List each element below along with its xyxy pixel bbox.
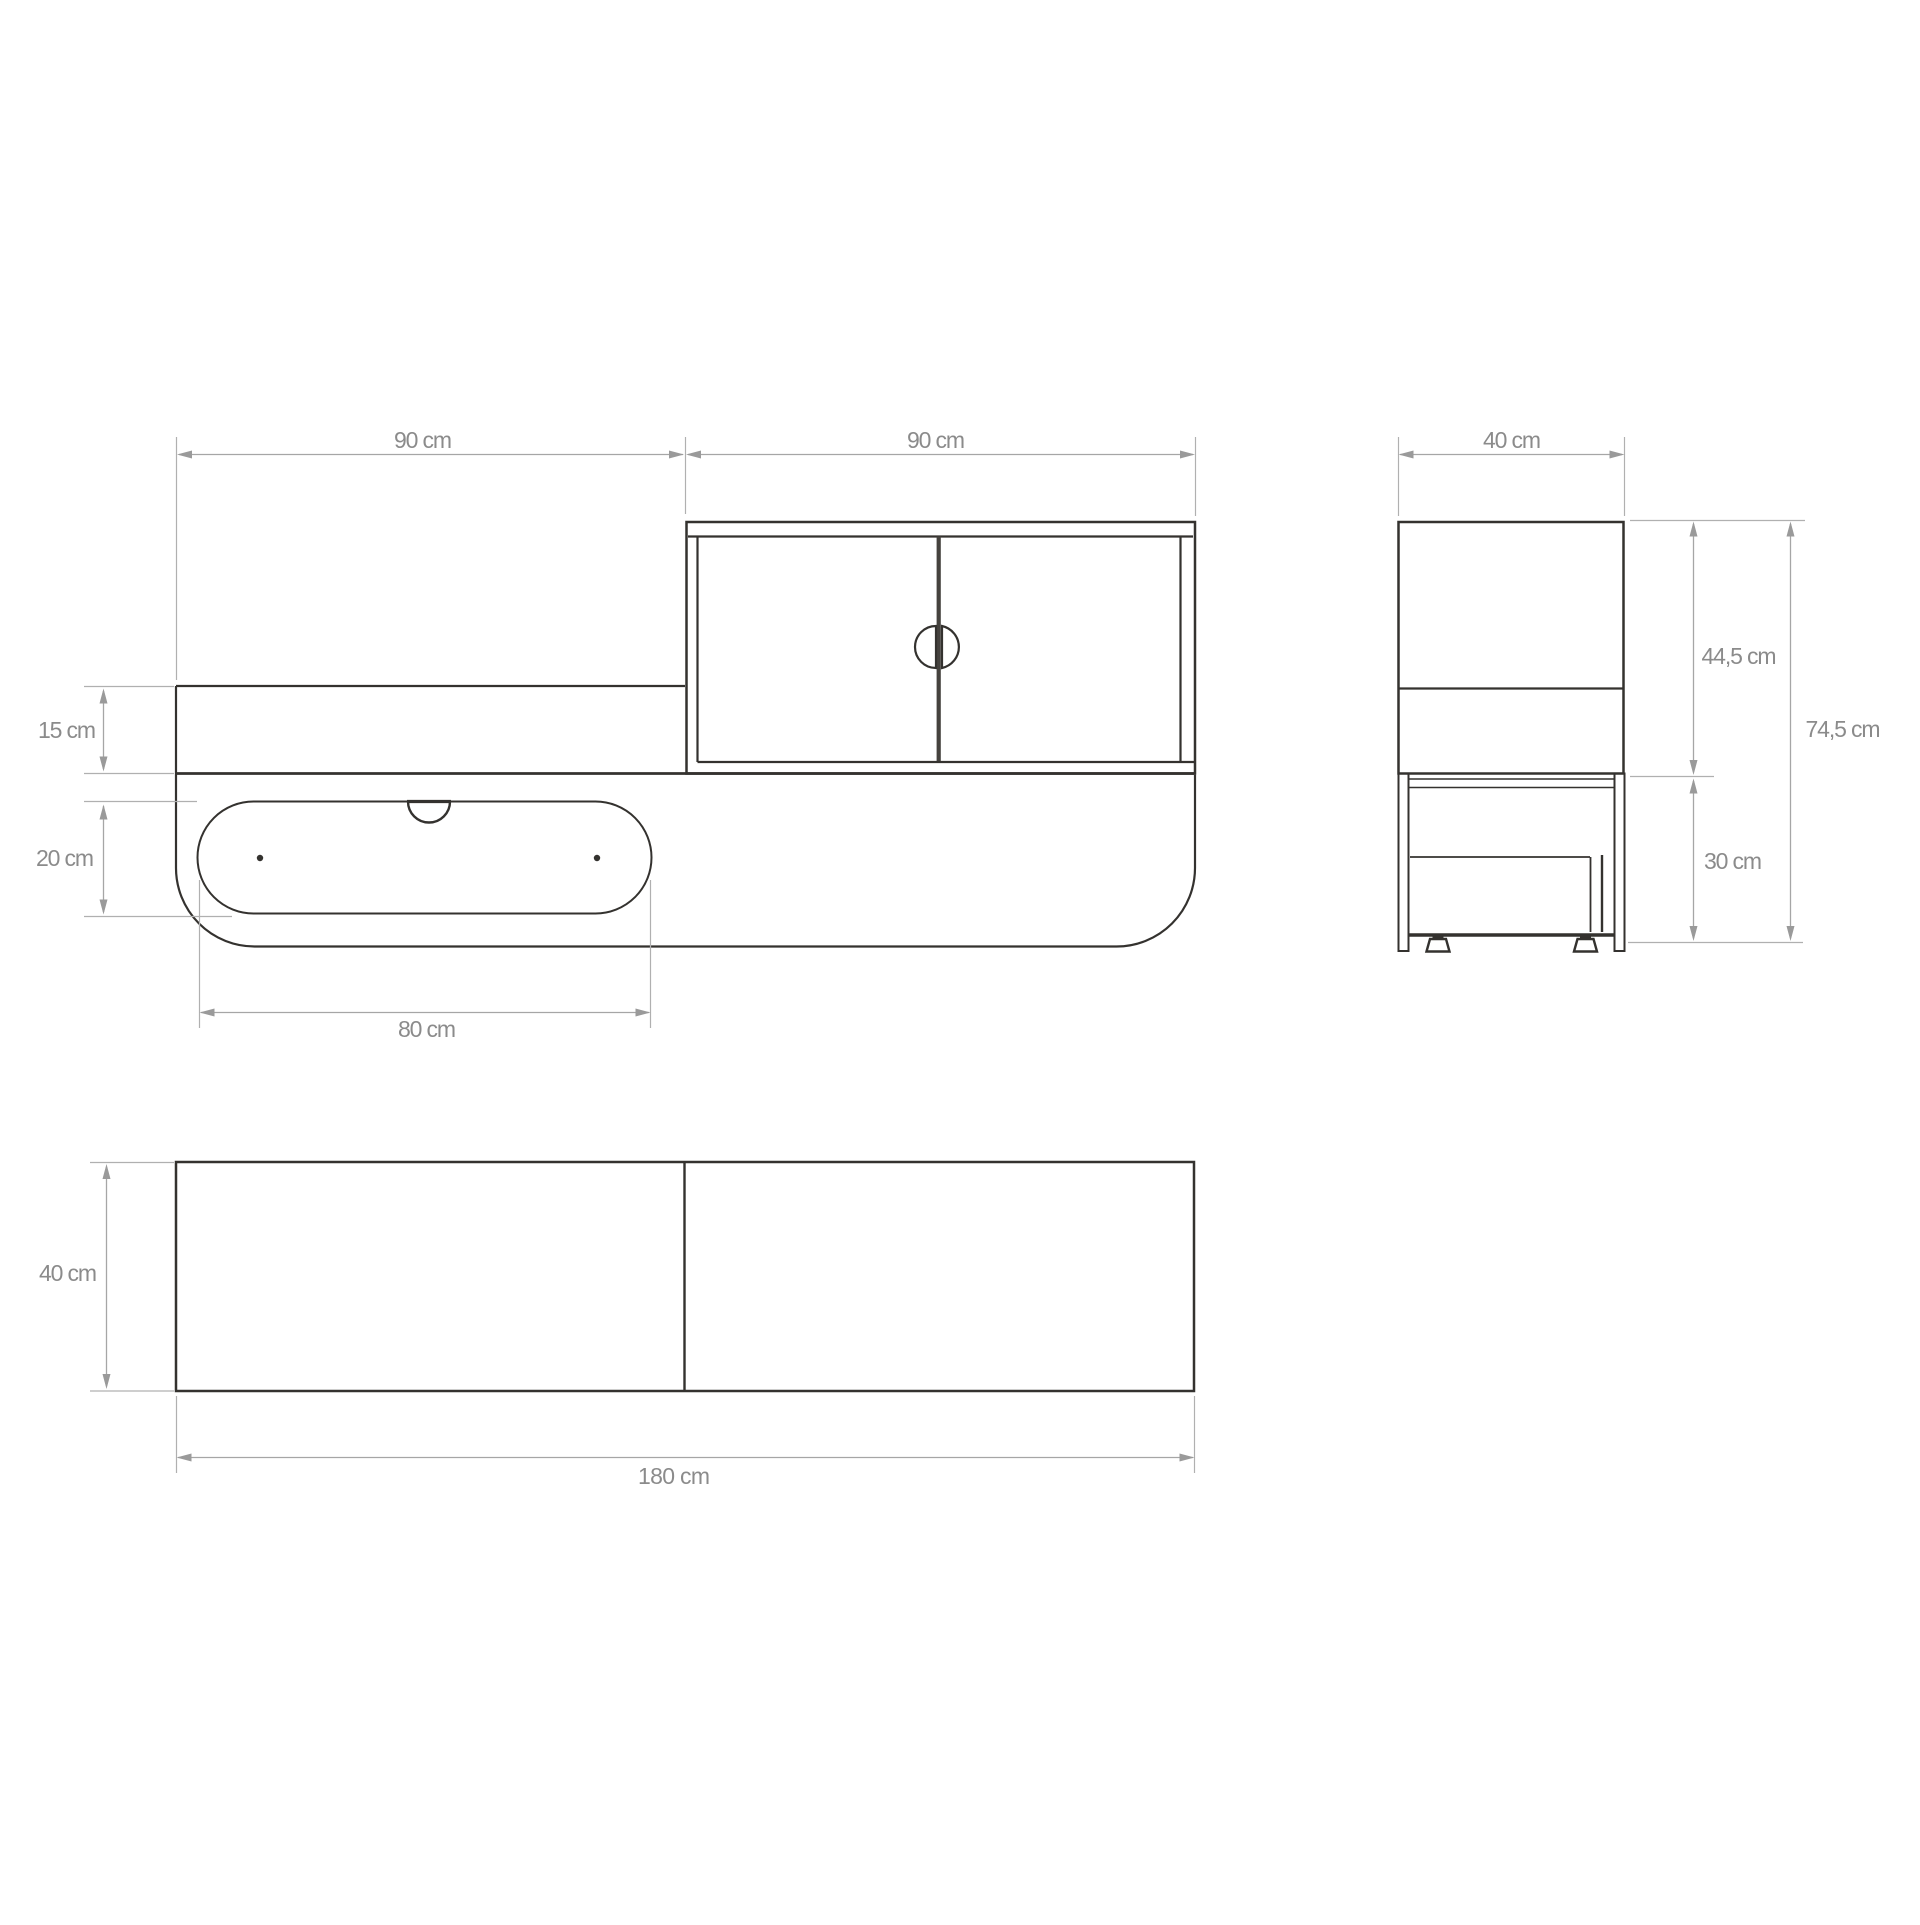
svg-text:30 cm: 30 cm <box>1704 848 1762 874</box>
svg-text:40 cm: 40 cm <box>1483 427 1541 453</box>
svg-text:74,5 cm: 74,5 cm <box>1806 716 1881 742</box>
svg-text:20 cm: 20 cm <box>36 845 94 871</box>
svg-text:90 cm: 90 cm <box>394 427 452 453</box>
svg-text:15 cm: 15 cm <box>38 717 96 743</box>
svg-text:80 cm: 80 cm <box>398 1016 456 1042</box>
svg-text:90 cm: 90 cm <box>907 427 965 453</box>
svg-text:40 cm: 40 cm <box>39 1260 97 1286</box>
svg-text:180 cm: 180 cm <box>638 1463 710 1489</box>
svg-text:44,5 cm: 44,5 cm <box>1702 643 1777 669</box>
